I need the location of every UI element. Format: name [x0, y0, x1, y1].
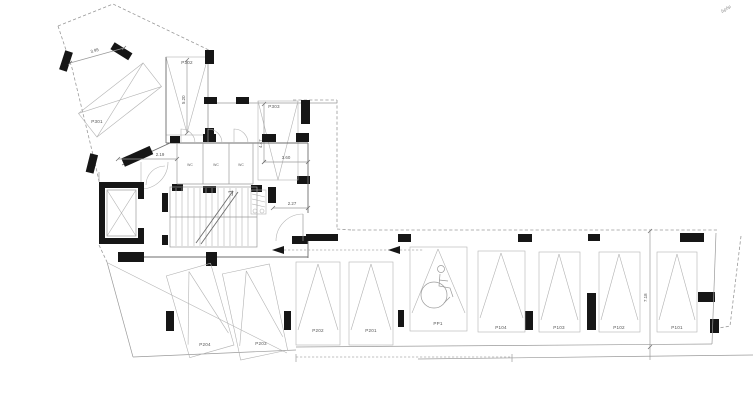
dimension-4-47: 4.47: [258, 102, 266, 164]
stall-label-p101: P101: [671, 325, 683, 330]
stall-p204: P204: [166, 263, 234, 357]
wheelchair-icon: [421, 266, 453, 309]
stall-label-p203: P203: [255, 341, 267, 346]
room-label-wc1: WC: [187, 163, 193, 167]
site-note: Δρόμ: [719, 3, 732, 14]
parking-row-columns: [166, 233, 719, 333]
dimension-2-27: 2.27: [271, 201, 310, 210]
stall-pp1-accessible: PP1: [410, 247, 467, 331]
stall-p104: P104: [478, 251, 525, 332]
stall-p103: P103: [539, 252, 580, 332]
dim-text-2-19: 2.19: [156, 152, 165, 157]
left-arrow-icon: [388, 246, 400, 254]
bicycle-icon: [251, 190, 266, 214]
stair-direction-arrow: [196, 191, 238, 244]
dim-text-7-18: 7.18: [643, 293, 648, 302]
stall-label-p104: P104: [495, 325, 507, 330]
dimension-5-20: 5.20: [181, 58, 189, 135]
yard-boundary: [107, 233, 753, 359]
stall-label-p301: P301: [91, 119, 103, 124]
floor-plan-page: P301 3.95 P302 5.20 P303: [0, 0, 753, 420]
stall-p101: P101: [657, 252, 697, 332]
dim-text-3-95: 3.95: [90, 47, 100, 54]
stall-label-p201: P201: [365, 328, 377, 333]
lobby-door-arc: [146, 166, 165, 185]
stall-p102: P102: [599, 252, 640, 332]
dim-text-2-27: 2.27: [288, 201, 297, 206]
stall-label-p202: P202: [312, 328, 324, 333]
drive-direction-arrows: [272, 246, 423, 254]
dimension-7-18: 7.18: [643, 229, 652, 360]
stall-label-pp1: PP1: [433, 321, 443, 326]
dim-text-3-60: 3.60: [282, 155, 291, 160]
room-label-wc3: WC: [238, 163, 244, 167]
dim-text-5-20: 5.20: [181, 95, 186, 104]
stall-label-p303: P303: [268, 104, 280, 109]
stall-p201: P201: [349, 262, 393, 345]
room-label-wc2: WC: [213, 163, 219, 167]
stall-label-p103: P103: [553, 325, 565, 330]
stall-p202: P202: [296, 262, 340, 345]
staircase: [170, 187, 257, 247]
floor-plan-canvas: P301 3.95 P302 5.20 P303: [0, 0, 753, 420]
elevator: [99, 166, 165, 244]
stall-p301: P301: [78, 63, 161, 137]
stall-label-p102: P102: [613, 325, 625, 330]
wc-door-arc: [234, 129, 248, 143]
dimension-3-60: 3.60: [262, 155, 310, 164]
wc-door-arc: [181, 129, 195, 143]
stall-label-p204: P204: [199, 342, 211, 347]
left-arrow-icon: [272, 246, 284, 254]
